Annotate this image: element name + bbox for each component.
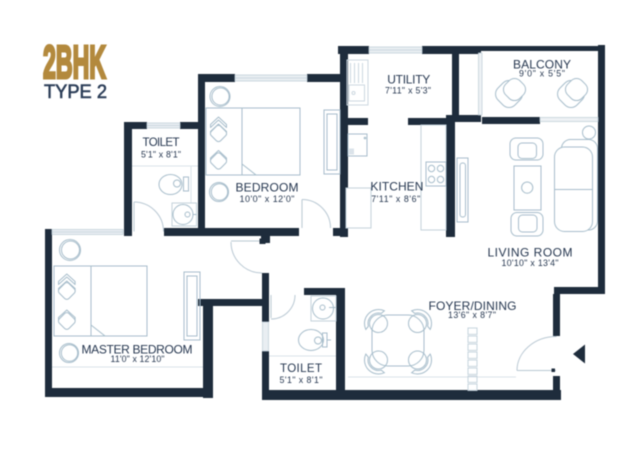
svg-text:5'1" x 8'1": 5'1" x 8'1" bbox=[280, 375, 323, 385]
svg-text:5'1" x 8'1": 5'1" x 8'1" bbox=[141, 150, 181, 160]
svg-text:13'6" x 8'7": 13'6" x 8'7" bbox=[448, 310, 496, 320]
svg-text:7'11" x 8'6": 7'11" x 8'6" bbox=[371, 194, 420, 204]
svg-text:TYPE 2: TYPE 2 bbox=[44, 82, 107, 103]
svg-text:BEDROOM: BEDROOM bbox=[236, 181, 299, 195]
svg-text:10'10" x 13'4": 10'10" x 13'4" bbox=[502, 258, 559, 268]
svg-text:9'0" x 5'5": 9'0" x 5'5" bbox=[519, 69, 565, 79]
svg-text:7'11" x 5'3": 7'11" x 5'3" bbox=[385, 86, 431, 96]
svg-text:10'0" x 12'0": 10'0" x 12'0" bbox=[240, 194, 295, 204]
svg-text:TOILET: TOILET bbox=[280, 363, 322, 375]
svg-text:KITCHEN: KITCHEN bbox=[370, 180, 423, 194]
svg-text:2BHK: 2BHK bbox=[43, 36, 106, 88]
svg-text:TOILET: TOILET bbox=[143, 137, 180, 149]
svg-text:11'0" x 12'10": 11'0" x 12'10" bbox=[111, 354, 165, 364]
